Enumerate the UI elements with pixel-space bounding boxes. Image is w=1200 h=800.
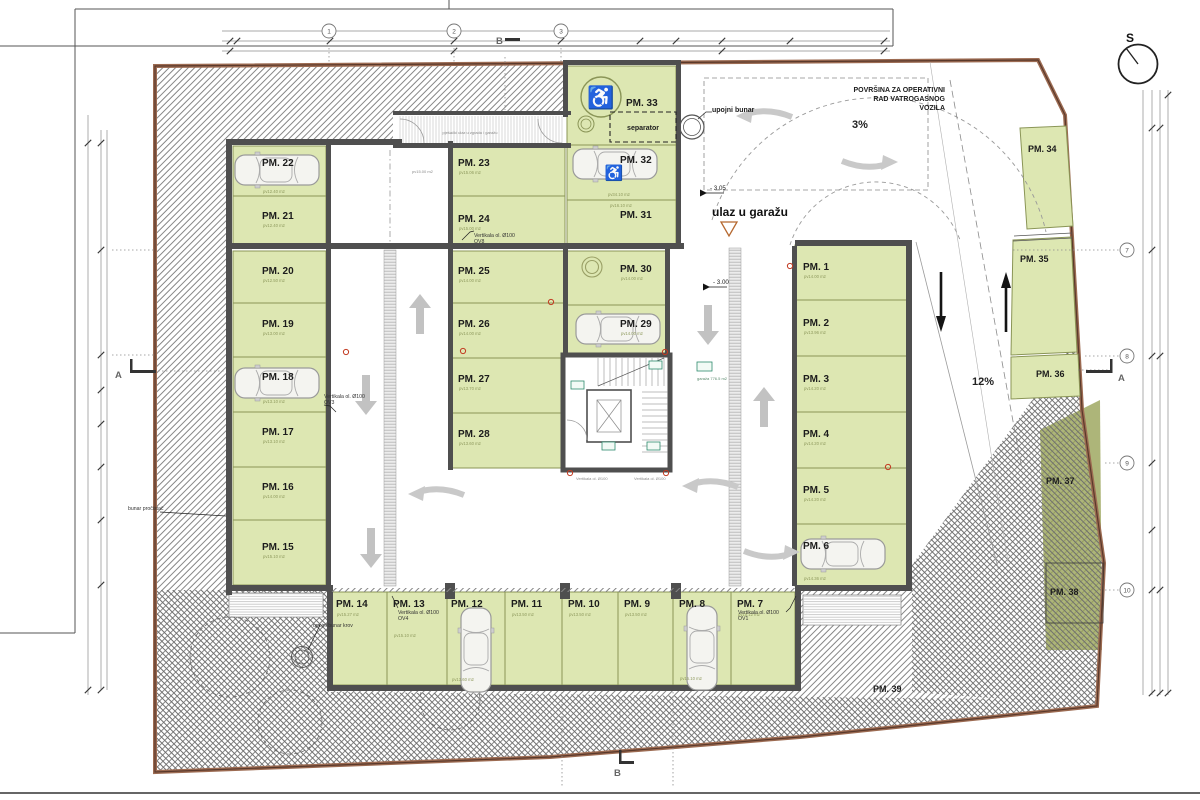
area-pm-16: pv14.00 m2 (263, 494, 286, 499)
label-pm-20: PM. 20 (262, 266, 294, 277)
area-pm-14: pv15.27 m2 (337, 612, 360, 617)
spot-pm-20 (233, 251, 326, 303)
fire-area-line2: RAD VATROGASNOG (873, 96, 945, 103)
area-pm-30: pv14.00 m2 (621, 276, 644, 281)
vertical-core-left: Vertikala ol. Ø100 (576, 476, 608, 481)
floor-plan-sheet: ♿ ♿ (0, 0, 1200, 800)
entrance-label: ulaz u garažu (712, 205, 788, 219)
label-pm-16: PM. 16 (262, 482, 294, 493)
area-pm-19: pv13.00 m2 (263, 331, 286, 336)
vertical-ov8-id: OV8 (474, 239, 484, 245)
label-pm-18: PM. 18 (262, 372, 294, 383)
area-pm-28: pv13.60 m2 (459, 441, 482, 446)
compass: S (1119, 31, 1158, 84)
spot-pm-4 (795, 412, 907, 468)
label-pm-4: PM. 4 (803, 429, 830, 440)
area-pm-29: pv14.00 m2 (621, 331, 644, 336)
corridor-note: pješački ulaz u zgradu i garažu (443, 130, 498, 135)
label-pm-7: PM. 7 (737, 599, 764, 610)
wheelchair-icon: ♿ (587, 85, 614, 110)
area-pm-26: pv14.00 m2 (459, 331, 482, 336)
label-pm-15: PM. 15 (262, 542, 294, 553)
label-pm-1: PM. 1 (803, 262, 830, 273)
spot-pm-30 (567, 251, 667, 305)
area-pm-5: pv14.20 m2 (804, 497, 827, 502)
area-pm-11: pv13.50 m2 (512, 612, 535, 617)
vertical-ov1-id: OV1 (738, 616, 748, 622)
bottom-row-threshold (331, 588, 795, 592)
vertical-ov4-id: OV4 (398, 616, 408, 622)
label-pm-37: PM. 37 (1046, 476, 1075, 486)
label-pm-11: PM. 11 (511, 599, 543, 610)
spot-pm-5 (795, 468, 907, 524)
label-pm-34: PM. 34 (1028, 144, 1057, 154)
grid-bubble-9: 9 (1125, 461, 1129, 468)
garage-area-tag: garaža 776.5 m2 (697, 376, 728, 381)
grid-bubble-10: 10 (1123, 588, 1131, 595)
grid-bubble-8: 8 (1125, 354, 1129, 361)
label-pm-6: PM. 6 (803, 541, 830, 552)
well-entry-label: upojni bunar (712, 107, 755, 114)
label-pm-3: PM. 3 (803, 374, 830, 385)
grid-bubble-2: 2 (452, 29, 456, 36)
spot-pm-34 (1020, 126, 1073, 229)
label-pm-31: PM. 31 (620, 210, 652, 221)
vertical-core-right: Vertikala ol. Ø100 (634, 476, 666, 481)
area-pm-25: pv14.00 m2 (459, 278, 482, 283)
label-pm-19: PM. 19 (262, 319, 294, 330)
label-pm-24: PM. 24 (458, 214, 490, 225)
area-pm-31: pv16.10 m2 (610, 203, 633, 208)
separator-label: separator (627, 125, 659, 132)
area-pm-3: pv14.20 m2 (804, 386, 827, 391)
level-garage-label: - 3.00 (713, 279, 729, 286)
spot-pm-19 (233, 303, 326, 357)
aisle-area-note: pv15.00 m2 (412, 169, 434, 174)
wheelchair-icon: ♿ (605, 164, 624, 182)
label-pm-36: PM. 36 (1036, 369, 1065, 379)
label-pm-8: PM. 8 (679, 599, 706, 610)
grid-bubble-7: 7 (1125, 248, 1129, 255)
area-pm-10: pv13.50 m2 (569, 612, 592, 617)
area-pm-13: pv15.10 m2 (394, 633, 417, 638)
section-a-right: A (1118, 373, 1125, 384)
grid-bubble-1: 1 (327, 29, 331, 36)
label-pm-22: PM. 22 (262, 158, 294, 169)
label-pm-26: PM. 26 (458, 319, 490, 330)
label-pm-25: PM. 25 (458, 266, 490, 277)
label-pm-21: PM. 21 (262, 211, 294, 222)
spot-pm-25 (450, 251, 565, 303)
label-pm-17: PM. 17 (262, 427, 294, 438)
area-pm-2: pv13.96 m2 (804, 330, 827, 335)
slope-entry-label: 3% (852, 119, 868, 131)
section-b-bottom: B (614, 768, 621, 779)
fire-area-line3: VOZILA (919, 105, 945, 112)
label-pm-10: PM. 10 (568, 599, 600, 610)
well-purifier-label: bunar pročistač (128, 506, 164, 512)
area-pm-15: pv15.10 m2 (263, 554, 286, 559)
fire-area-line1: POVRŠINA ZA OPERATIVNI (853, 85, 945, 94)
section-b-top: B (496, 36, 503, 47)
area-pm-8: pv15.10 m2 (680, 676, 703, 681)
label-pm-28: PM. 28 (458, 429, 490, 440)
label-pm-9: PM. 9 (624, 599, 651, 610)
area-pm-9: pv13.50 m2 (625, 612, 648, 617)
label-pm-12: PM. 12 (451, 599, 483, 610)
level-entry-label: - 3.05 (710, 185, 726, 192)
label-pm-14: PM. 14 (336, 599, 368, 610)
area-pm-20: pv12.50 m2 (263, 278, 286, 283)
area-pm-12: pv13.60 m2 (452, 677, 475, 682)
area-pm-18: pv13.10 m2 (263, 399, 286, 404)
area-pm-27: pv13.70 m2 (459, 386, 482, 391)
area-pm-4: pv14.20 m2 (804, 441, 827, 446)
label-pm-33: PM. 33 (626, 98, 658, 109)
garage-floor-plan-drawing: ♿ ♿ (0, 0, 1200, 800)
well-roof-label: upojni bunar krov (313, 623, 353, 629)
area-pm-23: pv15.06 m2 (459, 170, 482, 175)
area-pm-1: pv14.00 m2 (804, 274, 827, 279)
label-pm-13: PM. 13 (393, 599, 425, 610)
label-pm-38: PM. 38 (1050, 587, 1079, 597)
label-pm-2: PM. 2 (803, 318, 830, 329)
area-pm-32: pv34.10 m2 (608, 192, 631, 197)
compass-north-label: S (1126, 31, 1134, 45)
area-pm-21: pv12.40 m2 (263, 223, 286, 228)
area-pm-24: pv15.00 m2 (459, 226, 482, 231)
area-pm-22: pv12.40 m2 (263, 189, 286, 194)
label-pm-5: PM. 5 (803, 485, 830, 496)
label-pm-39: PM. 39 (873, 684, 902, 694)
label-pm-35: PM. 35 (1020, 254, 1049, 264)
label-pm-29: PM. 29 (620, 319, 652, 330)
label-pm-27: PM. 27 (458, 374, 490, 385)
section-a-left: A (115, 370, 122, 381)
label-pm-32: PM. 32 (620, 155, 652, 166)
slope-ramp-label: 12% (972, 376, 994, 388)
area-pm-17: pv13.10 m2 (263, 439, 286, 444)
label-pm-23: PM. 23 (458, 158, 490, 169)
label-pm-30: PM. 30 (620, 264, 652, 275)
grid-bubble-3: 3 (559, 29, 563, 36)
area-pm-6: pv14.36 m2 (804, 576, 827, 581)
